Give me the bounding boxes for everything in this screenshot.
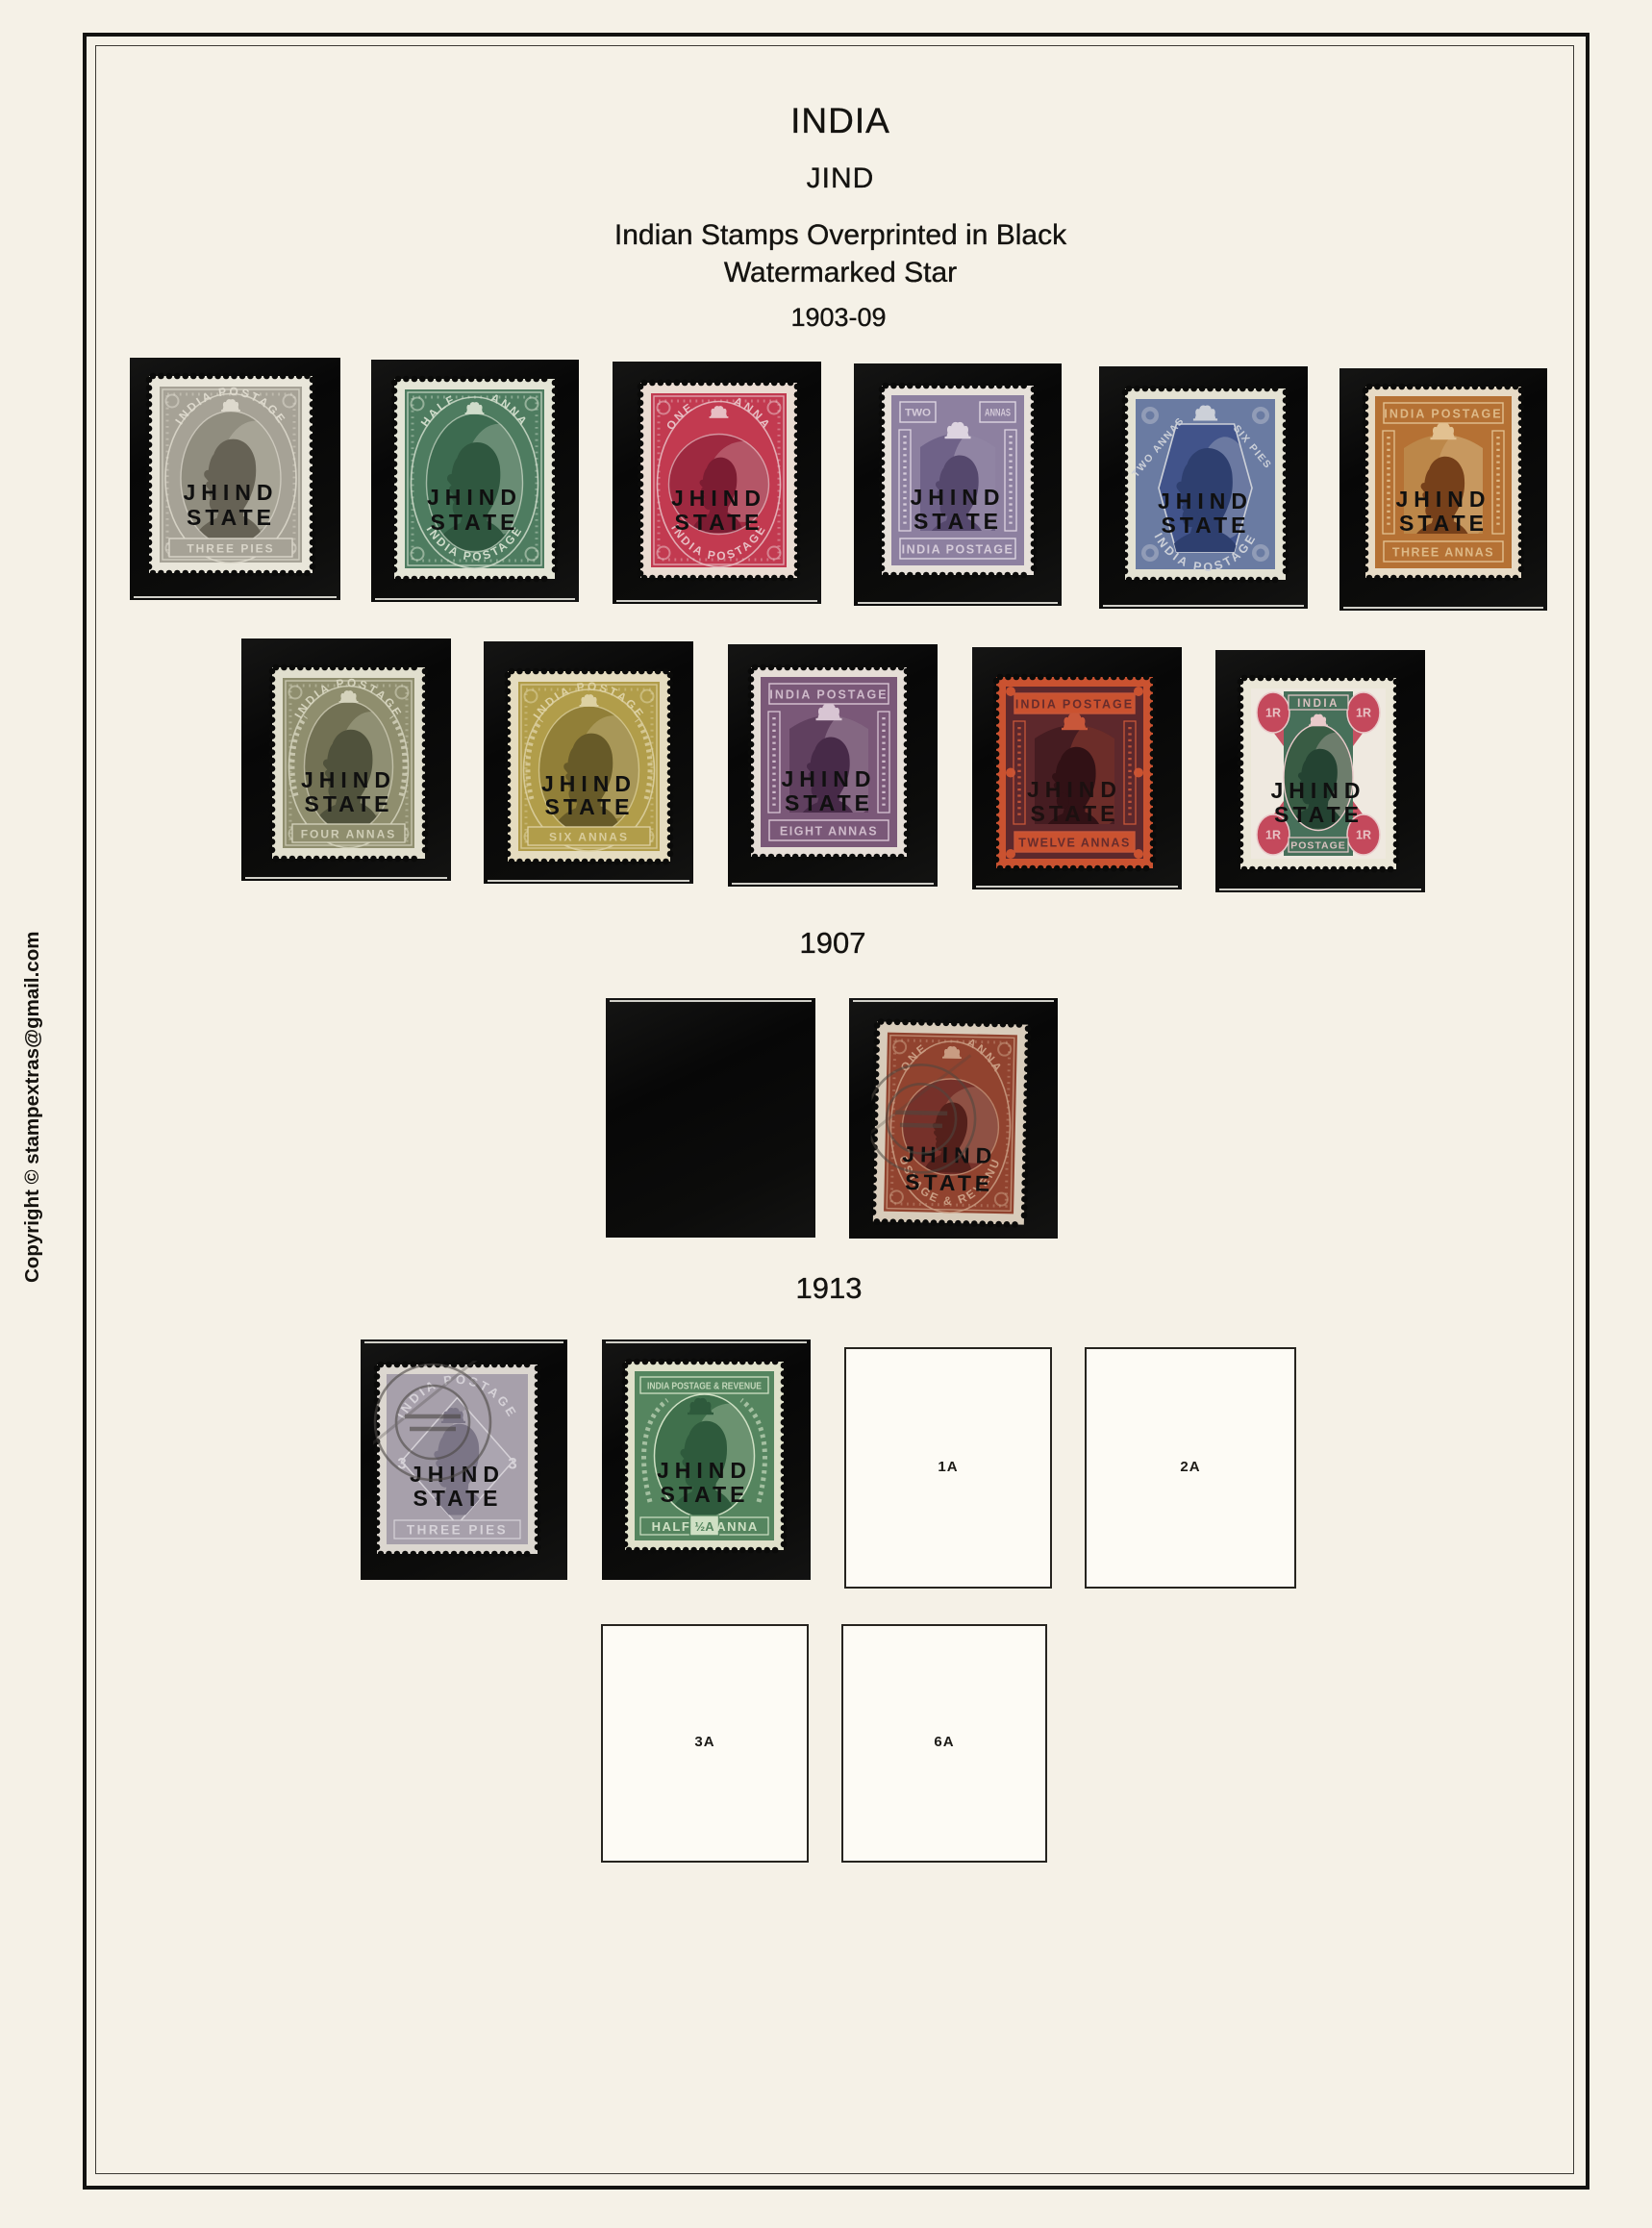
svg-text:1R: 1R xyxy=(1265,829,1281,842)
svg-text:JHIND: JHIND xyxy=(427,485,522,510)
svg-text:STATE: STATE xyxy=(305,791,393,816)
svg-text:ANNAS: ANNAS xyxy=(985,408,1011,419)
svg-text:JHIND: JHIND xyxy=(1158,488,1253,513)
svg-text:EIGHT ANNAS: EIGHT ANNAS xyxy=(780,825,878,839)
svg-text:SIX ANNAS: SIX ANNAS xyxy=(549,831,629,844)
svg-text:THREE ANNAS: THREE ANNAS xyxy=(1392,546,1494,560)
svg-text:JHIND: JHIND xyxy=(1395,487,1490,512)
svg-text:FOUR ANNAS: FOUR ANNAS xyxy=(301,828,397,841)
svg-text:JHIND: JHIND xyxy=(183,480,278,505)
svg-text:JHIND: JHIND xyxy=(910,485,1005,510)
svg-text:INDIA: INDIA xyxy=(1297,698,1339,710)
svg-text:TWO: TWO xyxy=(905,408,931,419)
svg-text:TWELVE ANNAS: TWELVE ANNAS xyxy=(1018,837,1131,850)
svg-text:STATE: STATE xyxy=(785,790,873,815)
svg-text:INDIA POSTAGE: INDIA POSTAGE xyxy=(1384,408,1502,421)
svg-text:THREE PIES: THREE PIES xyxy=(407,1523,508,1538)
svg-text:JHIND: JHIND xyxy=(657,1458,752,1483)
svg-text:HALF: HALF xyxy=(652,1519,691,1534)
svg-text:1R: 1R xyxy=(1356,829,1371,842)
svg-text:JHIND: JHIND xyxy=(301,767,396,792)
svg-text:THREE PIES: THREE PIES xyxy=(187,542,274,556)
svg-text:1R: 1R xyxy=(1356,707,1371,720)
svg-text:JHIND: JHIND xyxy=(1027,777,1122,802)
svg-text:STATE: STATE xyxy=(914,509,1002,534)
svg-text:STATE: STATE xyxy=(431,510,519,535)
svg-text:STATE: STATE xyxy=(675,510,763,535)
svg-text:STATE: STATE xyxy=(413,1486,502,1511)
svg-text:STATE: STATE xyxy=(1399,511,1488,536)
svg-text:INDIA POSTAGE: INDIA POSTAGE xyxy=(769,688,888,702)
svg-text:3: 3 xyxy=(508,1455,516,1473)
svg-text:STATE: STATE xyxy=(661,1482,749,1507)
svg-text:INDIA POSTAGE: INDIA POSTAGE xyxy=(902,543,1014,557)
svg-text:STATE: STATE xyxy=(187,505,275,530)
svg-text:STATE: STATE xyxy=(1162,513,1250,538)
svg-text:1R: 1R xyxy=(1265,707,1281,720)
svg-text:JHIND: JHIND xyxy=(541,771,637,796)
svg-text:STATE: STATE xyxy=(1031,801,1119,826)
svg-text:INDIA POSTAGE & REVENUE: INDIA POSTAGE & REVENUE xyxy=(647,1381,762,1392)
svg-text:JHIND: JHIND xyxy=(1270,778,1365,803)
svg-text:POSTAGE: POSTAGE xyxy=(1290,840,1346,852)
svg-text:JHIND: JHIND xyxy=(671,486,766,511)
svg-text:STATE: STATE xyxy=(545,794,634,819)
svg-text:JHIND: JHIND xyxy=(781,766,876,791)
svg-text:ANNA: ANNA xyxy=(716,1519,759,1534)
svg-text:INDIA POSTAGE: INDIA POSTAGE xyxy=(1015,698,1134,712)
svg-text:STATE: STATE xyxy=(1274,802,1363,827)
svg-text:½A: ½A xyxy=(694,1519,714,1534)
